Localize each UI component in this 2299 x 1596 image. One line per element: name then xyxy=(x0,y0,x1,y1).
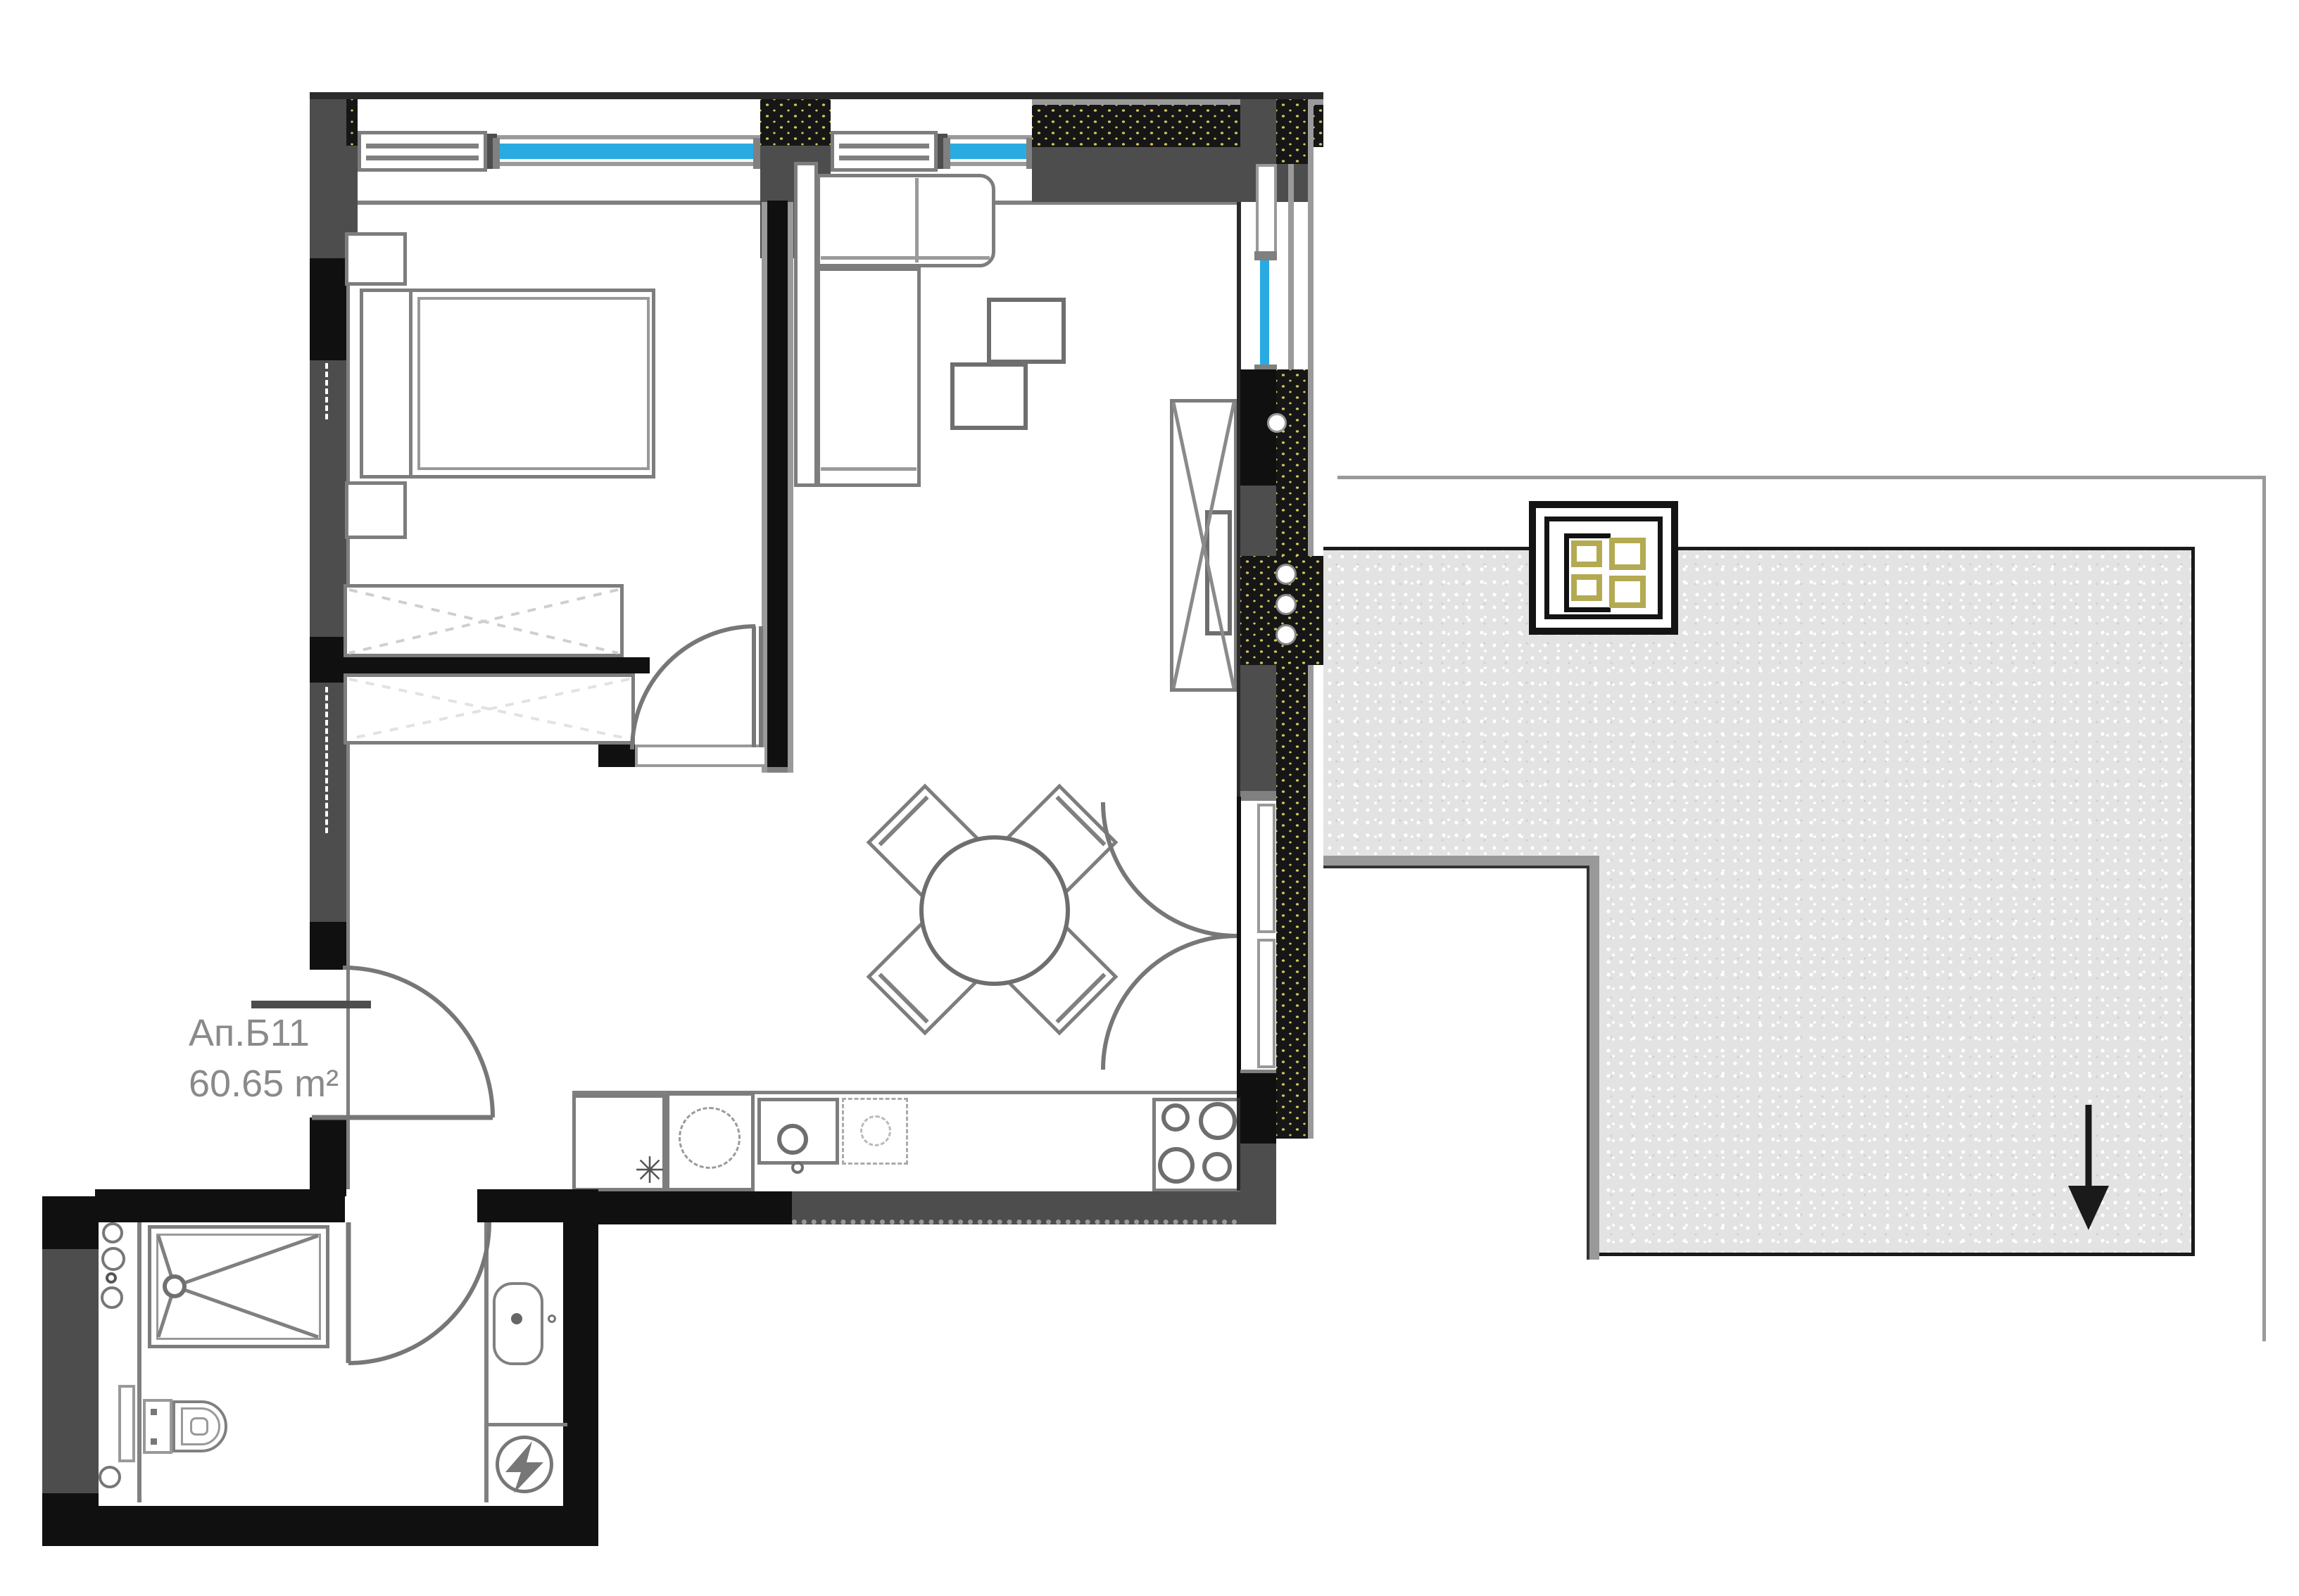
left-wall-segment xyxy=(310,683,346,837)
wardrobe-hall xyxy=(344,673,635,745)
living-window-bar xyxy=(839,156,929,160)
left-wall-segment xyxy=(310,637,346,683)
pipe-riser xyxy=(1267,413,1287,433)
terrace-door-swing-arc xyxy=(1103,802,1237,936)
skylight-pane xyxy=(1571,540,1602,567)
bedroom-window-bar xyxy=(366,156,479,160)
middle-pillar-hatch xyxy=(760,99,831,146)
right-wall-segment xyxy=(1240,1144,1276,1224)
sofa-seam xyxy=(821,256,990,260)
electrical-panel-icon xyxy=(496,1436,553,1493)
terrace-door-leaf-panel xyxy=(1257,804,1276,933)
terrace-door-threshold xyxy=(1237,797,1241,1098)
nightstand xyxy=(345,232,407,286)
skylight-pane xyxy=(1609,538,1646,570)
right-wall-insulation xyxy=(1276,369,1308,1139)
shower-drain xyxy=(163,1274,187,1298)
toilet-dot xyxy=(151,1409,157,1415)
right-wall-body xyxy=(1240,486,1276,556)
right-window-panel xyxy=(1256,164,1277,257)
hob-burner xyxy=(1161,1103,1190,1132)
wall-niche xyxy=(118,1385,135,1462)
chair-backrest xyxy=(1055,973,1106,1023)
faucet-dot xyxy=(511,1313,522,1324)
entrance-door-swing-arc xyxy=(343,968,493,1117)
apartment-label: Ап.Б11 60.65 m² xyxy=(189,1008,339,1109)
right-window-outer-line xyxy=(1288,164,1294,369)
closet-divider xyxy=(486,1423,567,1426)
toilet-cistern xyxy=(143,1399,172,1454)
chair-backrest xyxy=(1055,796,1106,847)
skylight-icon xyxy=(1529,501,1678,635)
right-wall-insulation xyxy=(1276,99,1308,164)
pipe-riser xyxy=(101,1286,123,1309)
shaft-west-line xyxy=(484,1222,489,1502)
coffee-table xyxy=(950,362,1028,430)
bathroom-north-wall xyxy=(95,1189,345,1222)
left-wall-segment xyxy=(310,360,346,422)
partition-casing xyxy=(762,202,767,773)
dishwasher-circle xyxy=(860,1115,891,1146)
terrace-door-swing-arc xyxy=(1103,936,1237,1070)
sofa-seam xyxy=(821,467,917,471)
terrace-void-inner-line xyxy=(1323,866,1589,1260)
toilet-flush xyxy=(190,1417,208,1436)
right-wall-body xyxy=(1240,99,1276,164)
nightstand xyxy=(345,481,407,539)
partition-casing xyxy=(788,202,793,773)
skylight-pane xyxy=(1609,576,1646,608)
sofa-seam xyxy=(915,178,919,262)
shaft-dash-line xyxy=(325,687,328,833)
bed-headboard-line xyxy=(409,291,412,476)
right-wall-body xyxy=(1240,665,1276,799)
apartment-area: 60.65 m² xyxy=(189,1058,339,1109)
sink-drain xyxy=(777,1124,808,1155)
floor-plan: ✳ xyxy=(0,0,2299,1596)
partition-wall xyxy=(767,201,788,767)
dining-table xyxy=(919,835,1070,986)
partition-cap xyxy=(767,767,788,773)
pipe-riser xyxy=(102,1222,123,1243)
skylight-pane xyxy=(1571,574,1602,601)
terrace-void xyxy=(1323,856,1599,1260)
pipe-riser xyxy=(99,1466,121,1488)
pipe-riser xyxy=(101,1247,125,1271)
terrace-door-leaf-panel xyxy=(1257,939,1276,1068)
window-frame-line xyxy=(947,135,1032,139)
entrance-door-jamb xyxy=(310,1117,346,1196)
chimney-flue xyxy=(1276,594,1297,615)
sofa-backrest xyxy=(794,162,818,487)
window-cap xyxy=(493,138,500,169)
right-wall-segment xyxy=(1240,1073,1276,1144)
bedroom-window-bar xyxy=(366,144,479,148)
terrace-boundary-line xyxy=(1337,476,2265,479)
window-frame-line xyxy=(497,135,760,139)
chair-backrest xyxy=(878,973,929,1023)
living-window-glazing xyxy=(947,144,1032,159)
chimney-flue xyxy=(1276,564,1297,585)
bathroom-partition-line xyxy=(137,1222,141,1502)
snowflake-icon: ✳ xyxy=(629,1150,671,1192)
wardrobe-partition-wall xyxy=(344,657,650,673)
south-wall-segment xyxy=(792,1191,1276,1224)
bathroom-door-swing-arc xyxy=(348,1222,489,1363)
window-cap xyxy=(753,138,760,169)
terrace-boundary-line xyxy=(2262,476,2266,1341)
faucet-dot xyxy=(791,1161,804,1174)
bedroom-door-swing-arc xyxy=(632,626,755,749)
bedroom-door-jamb xyxy=(598,745,635,767)
hob-burner xyxy=(1158,1147,1195,1184)
sofa-chaise xyxy=(817,174,995,267)
shaft-dash-line xyxy=(325,363,328,419)
bedroom-window-glazing xyxy=(497,144,760,159)
bathroom-west-wall-cap xyxy=(42,1196,99,1249)
coffee-table xyxy=(987,298,1066,364)
bed-mattress xyxy=(417,297,650,470)
sofa-seat xyxy=(817,267,921,487)
tv-screen xyxy=(1205,510,1232,635)
living-window-bar xyxy=(839,144,929,148)
terrace-door-head xyxy=(1240,791,1276,801)
living-window-frame xyxy=(831,131,938,172)
kitchen-sink-dashed xyxy=(679,1107,741,1169)
window-frame-line xyxy=(497,162,760,166)
toilet-dot xyxy=(151,1438,157,1445)
bathroom-south-wall xyxy=(42,1506,598,1546)
right-window-glazing xyxy=(1260,260,1269,366)
shaft-east-wall xyxy=(563,1189,598,1546)
entrance-door-jamb xyxy=(310,922,346,970)
bedroom-window-frame xyxy=(358,131,487,172)
hob-burner xyxy=(1199,1102,1237,1140)
faucet-dot xyxy=(548,1315,556,1323)
hob-burner xyxy=(1202,1152,1232,1182)
left-wall-segment xyxy=(310,837,346,922)
window-cap xyxy=(1254,251,1277,260)
apartment-id: Ап.Б11 xyxy=(189,1008,339,1058)
window-frame-line xyxy=(947,162,1032,166)
left-wall-segment xyxy=(310,422,346,637)
chimney-flue xyxy=(1276,624,1297,645)
chair-backrest xyxy=(878,796,929,847)
bedroom-door-sill xyxy=(635,745,767,767)
pipe-riser xyxy=(106,1272,117,1284)
top-wall-outer-line xyxy=(310,92,1323,99)
south-wall-segment xyxy=(584,1191,792,1224)
wardrobe-bedroom xyxy=(344,584,624,657)
window-cap xyxy=(943,138,950,169)
